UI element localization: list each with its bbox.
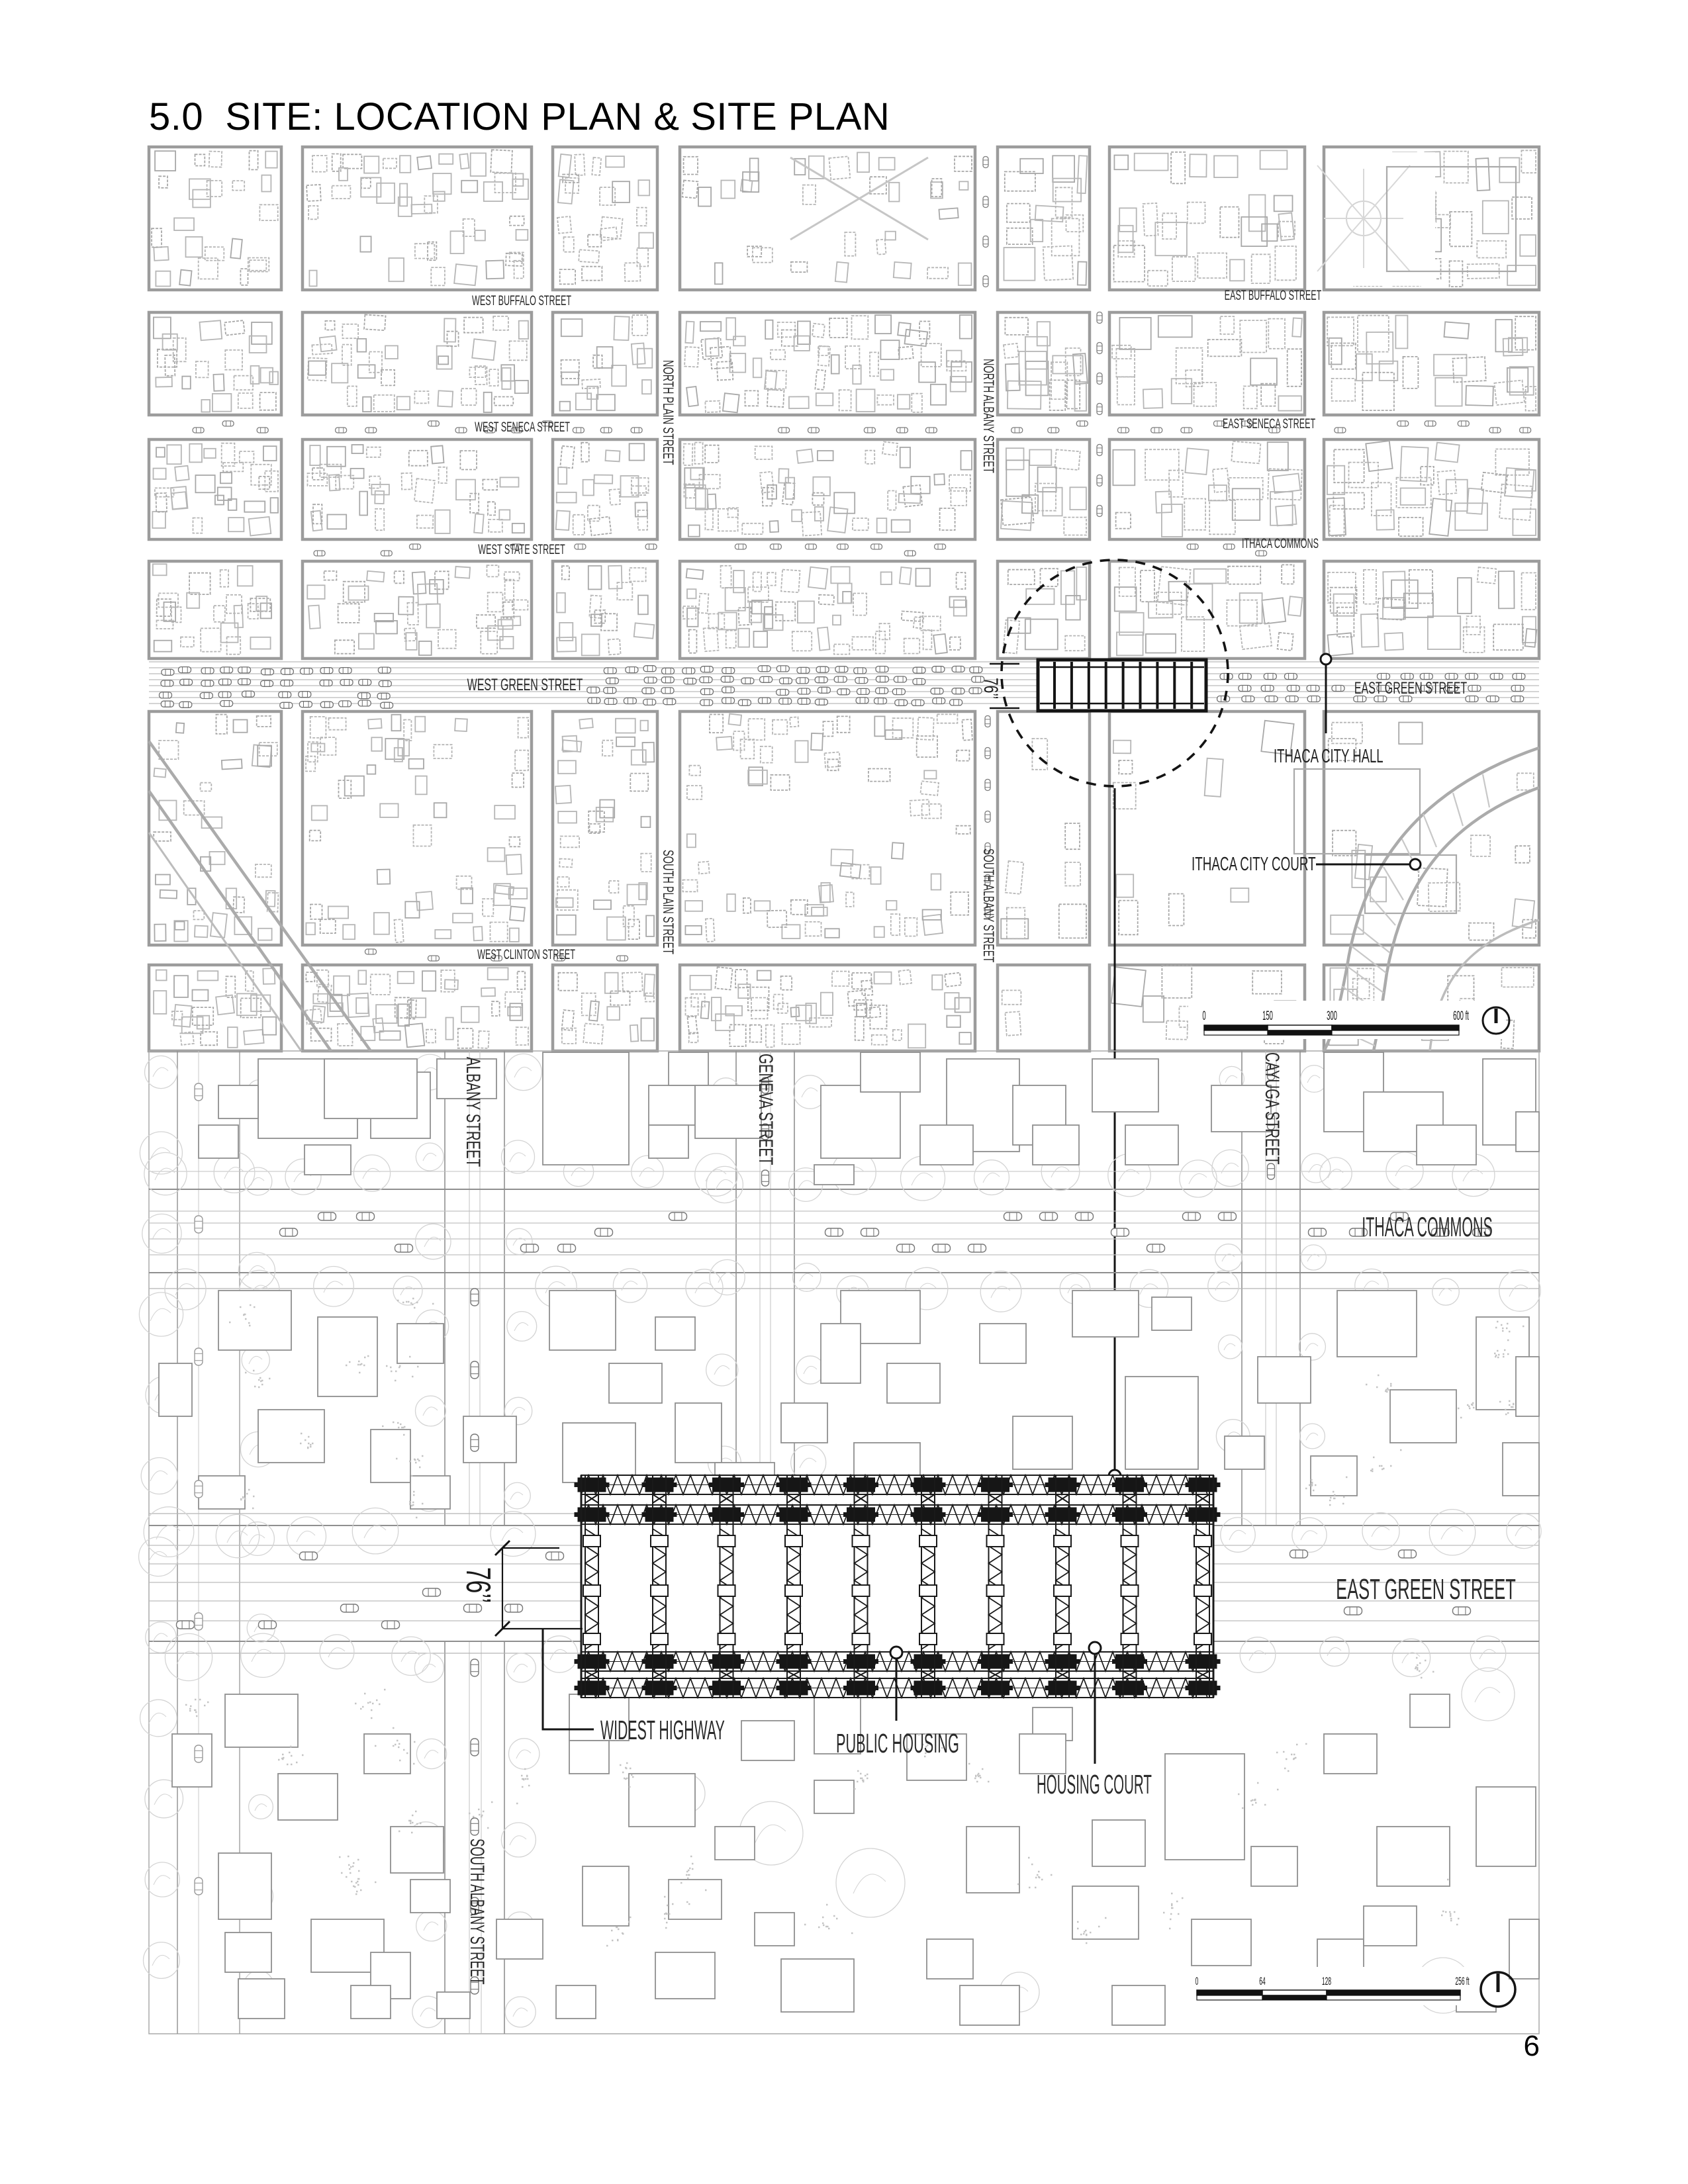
svg-text:EAST SENECA STREET: EAST SENECA STREET — [1223, 416, 1316, 432]
svg-text:64: 64 — [1259, 1975, 1266, 1987]
svg-text:EAST BUFFALO STREET: EAST BUFFALO STREET — [1225, 287, 1322, 303]
svg-text:0: 0 — [1202, 1009, 1205, 1024]
svg-text:EAST GREEN STREET: EAST GREEN STREET — [1354, 680, 1467, 698]
svg-text:ITHACA COMMONS: ITHACA COMMONS — [1362, 1212, 1492, 1243]
svg-text:GENEVA STREET: GENEVA STREET — [755, 1054, 776, 1165]
svg-text:SOUTH ALBANY STREET: SOUTH ALBANY STREET — [466, 1839, 489, 1985]
svg-text:HOUSING COURT: HOUSING COURT — [1037, 1769, 1152, 1799]
svg-text:WIDEST HIGHWAY: WIDEST HIGHWAY — [600, 1714, 725, 1745]
svg-text:PUBLIC HOUSING: PUBLIC HOUSING — [836, 1728, 959, 1758]
svg-text:0: 0 — [1196, 1975, 1199, 1987]
svg-text:NORTH PLAIN STREET: NORTH PLAIN STREET — [660, 360, 677, 465]
svg-text:SOUTH ALBANY STREET: SOUTH ALBANY STREET — [980, 848, 997, 962]
svg-text:256 ft: 256 ft — [1455, 1975, 1469, 1987]
svg-text:150: 150 — [1262, 1009, 1273, 1024]
svg-text:76’’: 76’’ — [459, 1567, 496, 1603]
svg-text:ITHACA CITY HALL: ITHACA CITY HALL — [1274, 746, 1383, 767]
svg-text:WEST BUFFALO STREET: WEST BUFFALO STREET — [472, 293, 571, 308]
svg-text:SOUTH PLAIN STREET: SOUTH PLAIN STREET — [660, 850, 677, 954]
svg-text:WEST STATE STREET: WEST STATE STREET — [478, 541, 565, 557]
svg-text:WEST GREEN STREET: WEST GREEN STREET — [467, 676, 583, 694]
svg-text:CAYUGA STREET: CAYUGA STREET — [1261, 1052, 1283, 1165]
svg-text:WEST SENECA STREET: WEST SENECA STREET — [475, 419, 570, 435]
svg-text:ALBANY STREET: ALBANY STREET — [462, 1057, 484, 1167]
svg-text:6: 6 — [1524, 2030, 1540, 2062]
svg-text:WEST CLINTON STREET: WEST CLINTON STREET — [477, 946, 575, 962]
svg-text:600 ft: 600 ft — [1453, 1009, 1469, 1024]
svg-text:300: 300 — [1327, 1009, 1337, 1024]
svg-text:ITHACA COMMONS: ITHACA COMMONS — [1242, 535, 1319, 551]
svg-text:128: 128 — [1322, 1975, 1331, 1987]
svg-text:NORTH ALBANY STREET: NORTH ALBANY STREET — [980, 359, 997, 473]
svg-text:76’’: 76’’ — [980, 678, 1001, 699]
svg-text:EAST GREEN STREET: EAST GREEN STREET — [1336, 1572, 1516, 1606]
svg-text:ITHACA CITY COURT: ITHACA CITY COURT — [1192, 854, 1316, 875]
svg-text:5.0 SITE: LOCATION PLAN & SIT: 5.0 SITE: LOCATION PLAN & SITE PLAN — [149, 95, 890, 138]
